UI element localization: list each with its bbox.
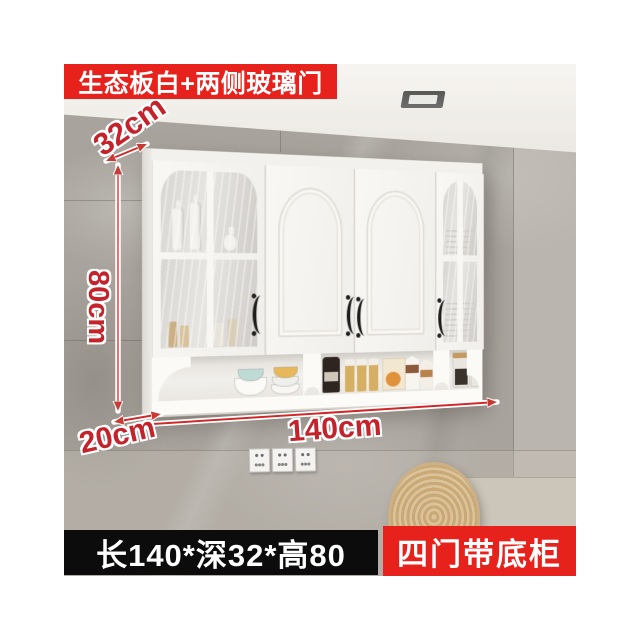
bottom-right-badge: 四门带底柜 [383,526,576,576]
size-bar: 长140*深32*高80 [64,530,378,575]
dimension-label-height: 80cm [81,270,114,344]
door-arch-panel [278,187,342,338]
shelf-bracket [152,357,191,402]
milk-carton [406,356,419,390]
jar-behind-glass [180,325,189,347]
carton-label [420,370,432,378]
power-outlet [249,448,270,472]
jar-behind-glass [214,323,223,347]
spice-jar [345,359,354,392]
tile-seam [64,200,142,201]
carton-label [406,365,419,374]
cereal-box-art [386,372,401,387]
bottle-label [324,372,338,382]
power-outlets [249,447,316,472]
door-handle [357,299,368,336]
cabinet-front [152,148,483,417]
jar-behind-glass [228,319,237,346]
product-photo: 32cm 80cm 20cm 140cm 生态板白+两侧玻璃门 长140*深32… [64,64,576,576]
glass-mullion [457,181,463,342]
cereal-box [382,358,405,391]
spice-jar [369,359,378,392]
jar-behind-glass [169,322,178,348]
shelf-divider [433,350,449,390]
jar-contents [455,369,468,386]
wall-cabinet [142,148,482,418]
bottle-behind-glass [190,201,201,250]
glass-door-left [152,160,266,357]
dimension-label-width: 140cm [287,409,383,449]
milk-carton [420,359,432,389]
ceiling-vent [401,91,446,108]
teapot-behind-glass [224,233,239,251]
dark-bottle [323,357,340,393]
solid-door-center-left [265,165,354,355]
shelf-divider [303,354,321,396]
spice-jar [357,359,366,392]
power-outlet [295,447,316,471]
door-handle [438,300,448,336]
shelf-bracket [467,349,483,389]
door-arch-panel [366,190,424,336]
power-outlet [272,448,293,472]
bottle-behind-glass [172,207,184,251]
glass-mullion [206,171,213,347]
glass-door-frame [161,170,258,349]
top-left-badge: 生态板白+两侧玻璃门 [64,64,337,99]
door-handle [253,295,265,334]
